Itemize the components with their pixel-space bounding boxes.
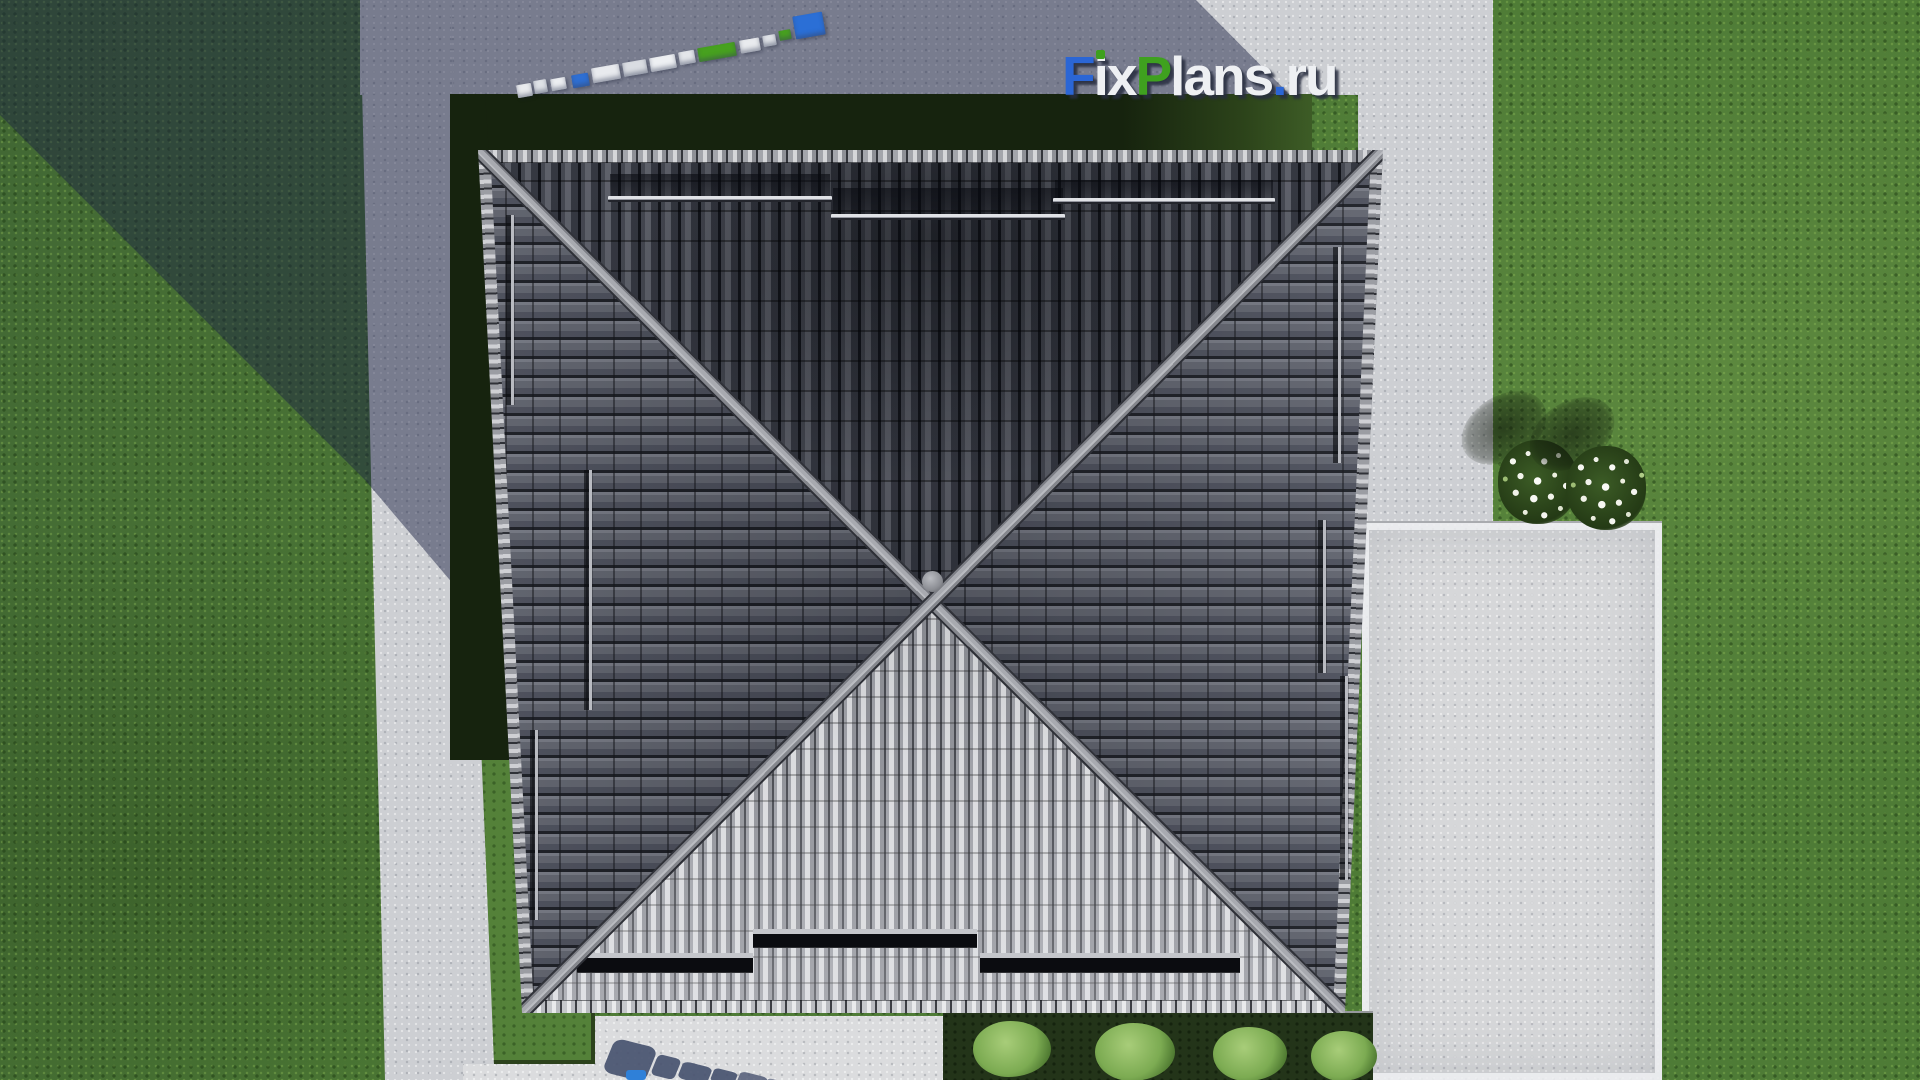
watermark-letters-shadow bbox=[600, 1038, 800, 1080]
watermark-letter: x bbox=[1107, 44, 1136, 108]
snow-guard-bar bbox=[530, 730, 539, 920]
snow-guard-bar bbox=[753, 934, 977, 948]
logo-letter-block bbox=[678, 50, 696, 66]
letter-shadow-blob bbox=[650, 1054, 682, 1080]
logo-letter-block bbox=[739, 37, 761, 53]
hip-roof bbox=[478, 150, 1383, 1016]
blue-letter-top bbox=[626, 1070, 646, 1080]
watermark-letter: n bbox=[1212, 44, 1244, 108]
letter-shadow-blob bbox=[710, 1068, 739, 1080]
fixplans-watermark: FixPlans.ru bbox=[1062, 44, 1337, 108]
watermark-letter: i bbox=[1094, 44, 1107, 108]
snow-guard-bar bbox=[831, 214, 1065, 220]
snow-guard-bar bbox=[577, 958, 753, 973]
snow-guard-bar bbox=[1318, 520, 1327, 673]
logo-letter-block bbox=[550, 77, 567, 91]
logo-letter-block bbox=[516, 83, 533, 98]
letter-shadow-blob bbox=[736, 1071, 768, 1080]
logo-letter-block bbox=[792, 12, 826, 40]
ridge-apex-cap bbox=[922, 571, 943, 592]
watermark-letter: r bbox=[1286, 44, 1305, 108]
logo-letter-block bbox=[571, 73, 590, 89]
watermark-letter: l bbox=[1170, 44, 1183, 108]
snow-guard-bar bbox=[584, 470, 593, 710]
watermark-letter: . bbox=[1272, 44, 1285, 108]
eave-tiles-bottom bbox=[522, 1000, 1345, 1014]
letter-shadow-blob bbox=[677, 1061, 713, 1080]
logo-letter-block bbox=[649, 54, 677, 72]
watermark-letter: a bbox=[1183, 44, 1212, 108]
render-canvas: FixPlans.ru bbox=[0, 0, 1920, 1080]
snow-guard-bar bbox=[608, 196, 832, 202]
eave-tiles-top bbox=[478, 150, 1383, 163]
watermark-letter: P bbox=[1135, 44, 1170, 108]
watermark-letter: u bbox=[1305, 44, 1337, 108]
watermark-letter: F bbox=[1062, 44, 1094, 108]
logo-letter-block bbox=[762, 34, 777, 47]
snow-guard-bar bbox=[980, 958, 1240, 973]
watermark-letter: s bbox=[1244, 44, 1273, 108]
logo-letter-block bbox=[778, 29, 792, 41]
logo-letter-block bbox=[697, 42, 737, 62]
snow-guard-bar bbox=[506, 215, 515, 405]
snow-guard-bar bbox=[1053, 198, 1275, 204]
logo-letter-block bbox=[591, 64, 621, 84]
snow-guard-bar bbox=[1333, 247, 1342, 463]
snow-guard-bar bbox=[1340, 676, 1349, 880]
logo-letter-block bbox=[533, 79, 548, 94]
logo-letter-block bbox=[622, 59, 648, 77]
